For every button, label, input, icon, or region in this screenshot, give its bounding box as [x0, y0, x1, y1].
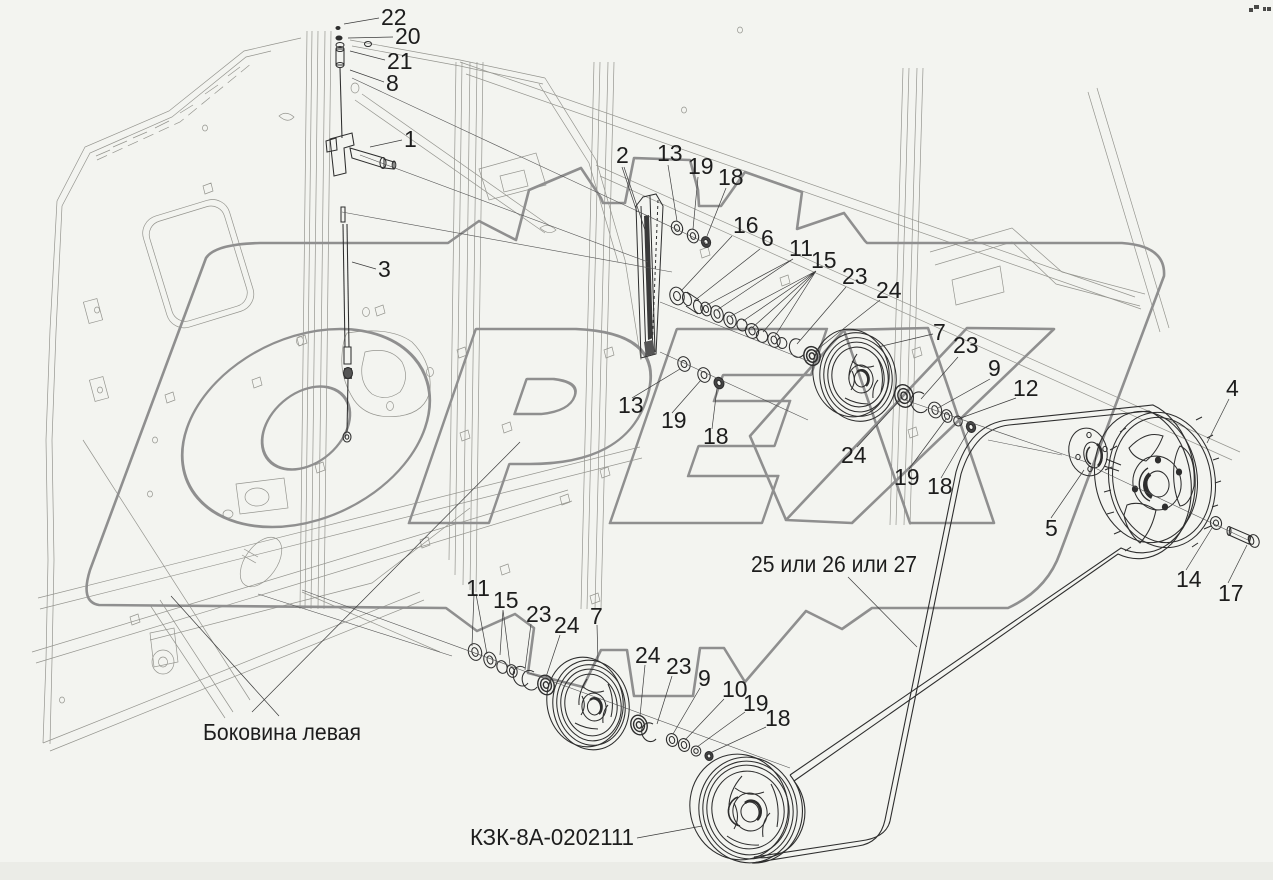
- svg-text:17: 17: [1218, 580, 1244, 606]
- svg-text:18: 18: [703, 423, 729, 449]
- svg-text:18: 18: [927, 473, 953, 499]
- svg-text:11: 11: [466, 575, 490, 601]
- svg-text:24: 24: [635, 642, 661, 668]
- svg-text:9: 9: [698, 665, 711, 691]
- svg-text:7: 7: [590, 603, 603, 629]
- svg-text:14: 14: [1176, 566, 1202, 592]
- svg-text:9: 9: [988, 355, 1001, 381]
- svg-text:23: 23: [526, 601, 552, 627]
- svg-text:24: 24: [554, 612, 580, 638]
- svg-text:24: 24: [876, 277, 902, 303]
- svg-text:КЗК-8А-0202111: КЗК-8А-0202111: [470, 824, 634, 850]
- svg-text:18: 18: [718, 164, 744, 190]
- svg-text:5: 5: [1045, 515, 1058, 541]
- svg-text:20: 20: [395, 23, 421, 49]
- svg-text:13: 13: [618, 392, 644, 418]
- svg-text:Боковина левая: Боковина левая: [203, 719, 361, 745]
- svg-text:19: 19: [894, 464, 920, 490]
- svg-text:15: 15: [811, 247, 837, 273]
- svg-text:23: 23: [953, 332, 979, 358]
- svg-text:12: 12: [1013, 375, 1039, 401]
- svg-text:8: 8: [386, 70, 399, 96]
- svg-text:23: 23: [666, 653, 692, 679]
- svg-text:15: 15: [493, 587, 519, 613]
- svg-text:16: 16: [733, 212, 759, 238]
- svg-text:2: 2: [616, 142, 629, 168]
- svg-text:13: 13: [657, 140, 683, 166]
- svg-text:18: 18: [765, 705, 791, 731]
- svg-text:24: 24: [841, 442, 867, 468]
- svg-text:25 или 26 или 27: 25 или 26 или 27: [751, 551, 917, 577]
- svg-text:6: 6: [761, 225, 774, 251]
- svg-text:11: 11: [789, 235, 813, 261]
- svg-text:4: 4: [1226, 375, 1239, 401]
- svg-text:1: 1: [404, 126, 417, 152]
- svg-text:3: 3: [378, 256, 391, 282]
- svg-text:19: 19: [661, 407, 687, 433]
- svg-text:7: 7: [933, 319, 946, 345]
- svg-text:23: 23: [842, 263, 868, 289]
- svg-text:19: 19: [688, 153, 714, 179]
